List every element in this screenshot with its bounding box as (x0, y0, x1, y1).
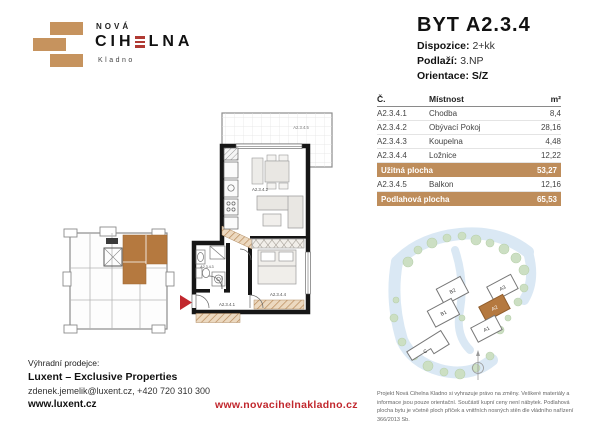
col-header-room: Místnost (429, 94, 519, 104)
dining-set-icon (252, 155, 289, 189)
bath-label: A2.3.4.3 (200, 265, 213, 269)
unit-title: BYT A2.3.4 (417, 14, 531, 37)
table-header-row: Č. Místnost m² (377, 92, 561, 107)
logo-brick-icon (33, 38, 66, 51)
table-row-balcony: A2.3.4.5 Balkon 12,16 (377, 178, 561, 192)
field-label: Dispozice: (417, 40, 470, 52)
logo-cihelna-text: CIH LNA (95, 33, 193, 51)
col-header-area: m² (519, 94, 561, 104)
building-b1: B1 (427, 298, 459, 327)
site-plan: B2 B1 A3 A2 A1 C (383, 224, 590, 384)
disclaimer-text: Projekt Nová Cihelna Kladno si vyhrazuje… (377, 390, 585, 423)
room-area-table: Č. Místnost m² A2.3.4.1 Chodba 8,4 A2.3.… (377, 92, 561, 207)
unit-field-podlazi: Podlaží: 3.NP (417, 55, 484, 67)
logo-nova-text: NOVÁ (96, 22, 131, 31)
living-label: A2.3.4.2 (252, 187, 269, 192)
logo-e-icon (135, 36, 145, 48)
building-a1: A1 (471, 315, 502, 342)
bed-icon (258, 250, 296, 284)
unit-field-dispozice: Dispozice: 2+kk (417, 40, 495, 52)
logo-city-text: Kladno (98, 57, 135, 64)
wardrobe-strip (252, 239, 304, 248)
field-value: 2+kk (472, 40, 494, 52)
total-area-row: Podlahová plocha 65,53 (377, 192, 561, 207)
logo-brick-icon (50, 54, 83, 67)
bedroom-label: A2.3.4.4 (270, 292, 287, 297)
balcony-label: A2.3.4.5 (293, 125, 309, 130)
seller-label: Výhradní prodejce: (28, 358, 99, 368)
floor-plan: A2.3.4.5 (175, 95, 390, 347)
unit-sheet-page: NOVÁ CIH LNA Kladno BYT A2.3.4 Dispozice… (0, 0, 600, 423)
table-row: A2.3.4.1 Chodba 8,4 (377, 107, 561, 121)
table-row: A2.3.4.2 Obývací Pokoj 28,16 (377, 121, 561, 135)
hall-label: A2.3.4.1 (219, 302, 236, 307)
seller-name: Luxent – Exclusive Properties (28, 371, 177, 383)
logo-text-pre: CIH (95, 33, 135, 51)
kitchen-icon (224, 148, 238, 229)
field-label: Orientace: (417, 70, 469, 82)
usable-area-row: Užitná plocha 53,27 (377, 163, 561, 178)
logo-text-post: LNA (149, 33, 194, 51)
table-row: A2.3.4.4 Ložnice 12,22 (377, 149, 561, 163)
field-value: 3.NP (460, 55, 483, 67)
hatch-strip-bottom (196, 314, 240, 323)
logo-brick-icon (50, 22, 83, 35)
seller-website-link[interactable]: www.luxent.cz (28, 399, 97, 410)
project-website-link[interactable]: www.novacihelnakladno.cz (215, 399, 358, 411)
unit-field-orientace: Orientace: S/Z (417, 70, 488, 82)
key-plan (55, 222, 185, 337)
seller-contact[interactable]: zdenek.jemelik@luxent.cz, +420 720 310 3… (28, 386, 210, 396)
table-row: A2.3.4.3 Koupelna 4,48 (377, 135, 561, 149)
field-label: Podlaží: (417, 55, 457, 67)
field-value: S/Z (472, 70, 488, 82)
